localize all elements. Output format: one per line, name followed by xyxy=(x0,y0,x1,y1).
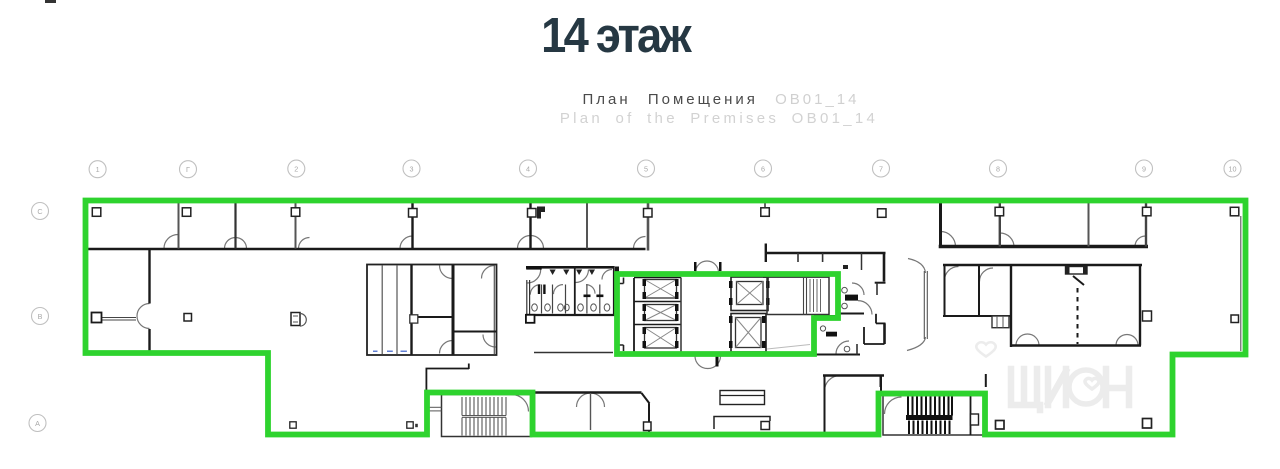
svg-text:3: 3 xyxy=(410,165,414,174)
svg-text:5: 5 xyxy=(644,165,648,174)
svg-text:8: 8 xyxy=(996,165,1000,174)
svg-text:10: 10 xyxy=(1229,165,1237,174)
svg-text:А: А xyxy=(35,419,40,428)
svg-text:6: 6 xyxy=(761,165,765,174)
svg-text:9: 9 xyxy=(1142,165,1146,174)
svg-text:С: С xyxy=(37,207,42,216)
svg-text:В: В xyxy=(38,312,43,321)
svg-text:Г: Г xyxy=(186,165,190,174)
svg-text:2: 2 xyxy=(294,165,298,174)
svg-text:4: 4 xyxy=(526,165,530,174)
svg-text:7: 7 xyxy=(879,165,883,174)
svg-text:1: 1 xyxy=(96,165,100,174)
